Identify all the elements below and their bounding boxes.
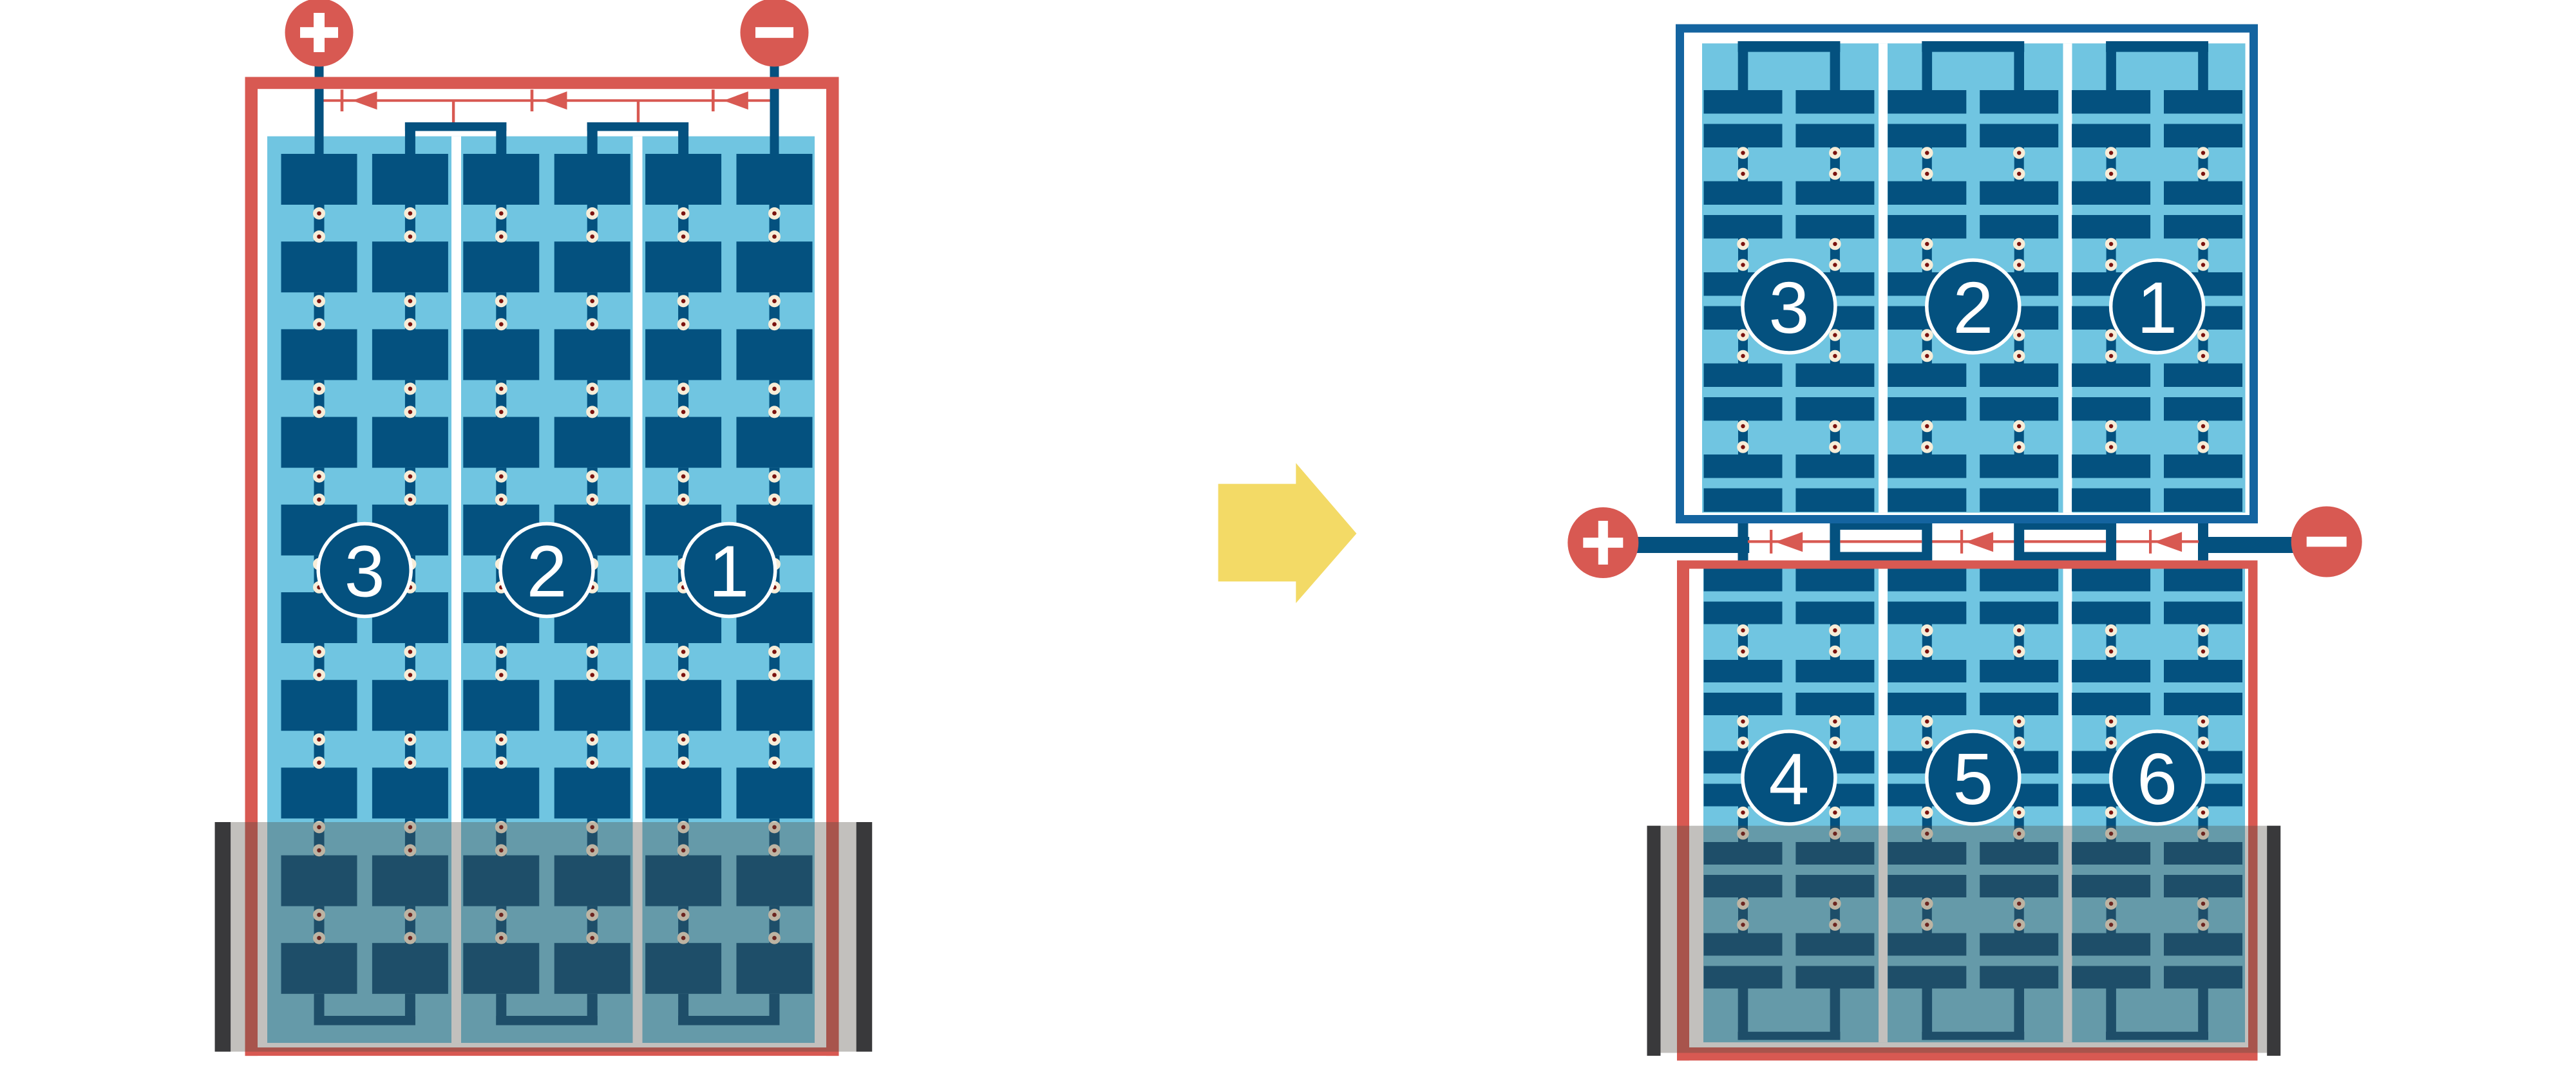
svg-text:1: 1 xyxy=(708,531,749,612)
svg-text:1: 1 xyxy=(2137,267,2177,348)
svg-text:3: 3 xyxy=(345,531,385,612)
svg-text:5: 5 xyxy=(1953,738,1993,820)
svg-text:3: 3 xyxy=(1768,267,1809,348)
svg-text:2: 2 xyxy=(1953,267,1993,348)
svg-text:6: 6 xyxy=(2137,738,2177,820)
svg-text:2: 2 xyxy=(527,531,567,612)
svg-text:4: 4 xyxy=(1768,738,1809,820)
